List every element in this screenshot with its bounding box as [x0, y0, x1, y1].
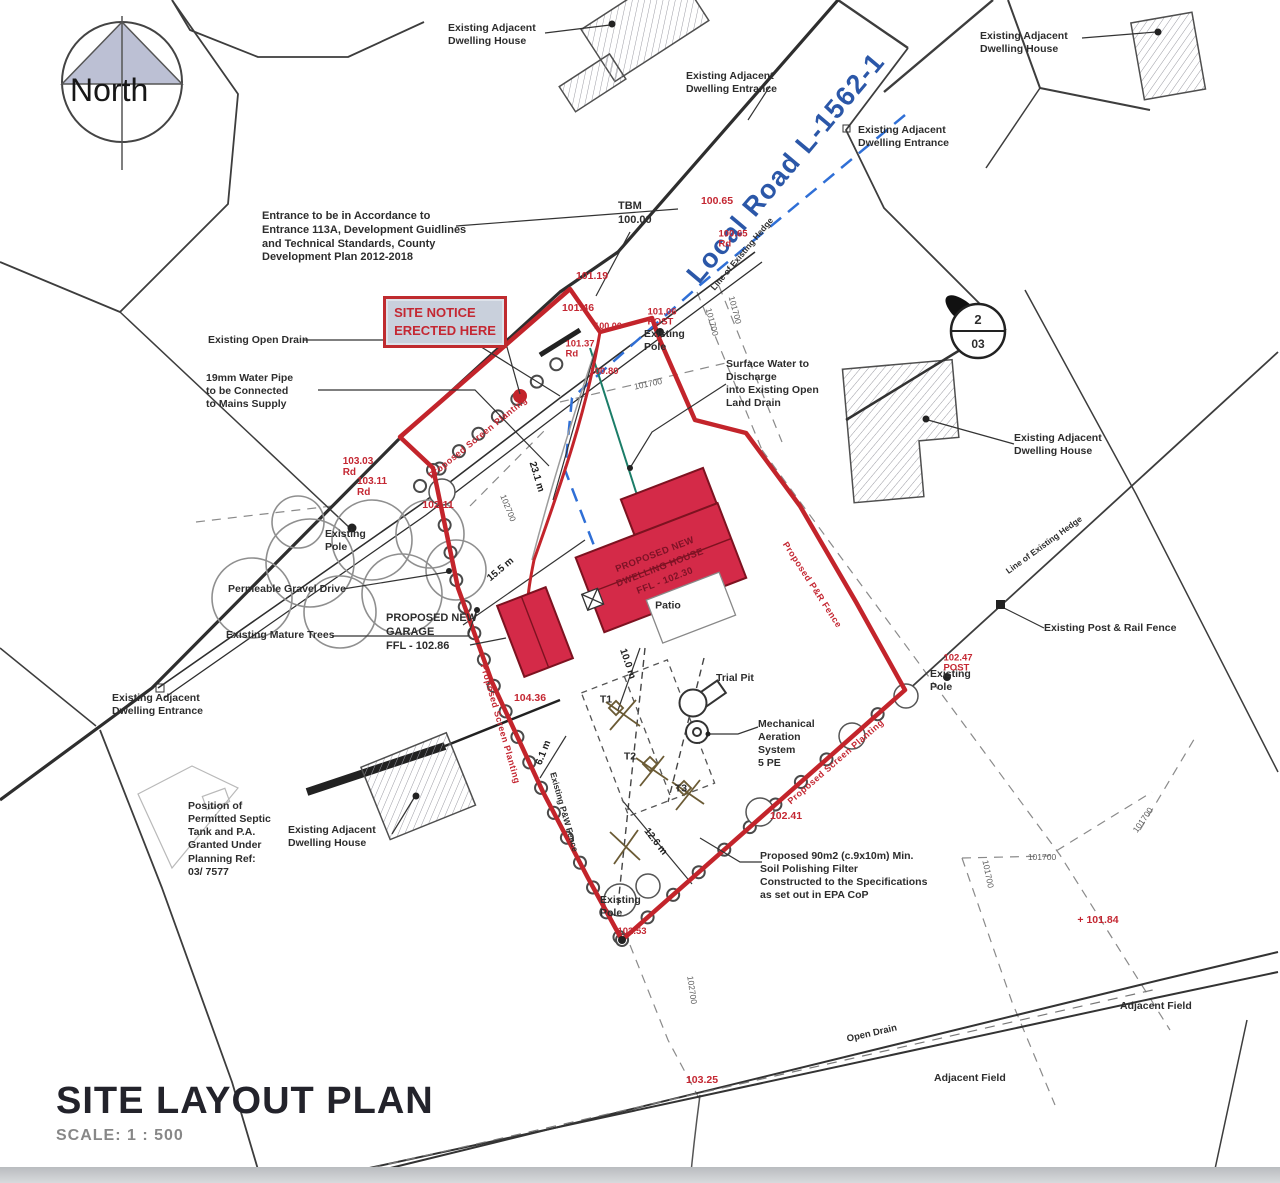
- site-plan-linework: [0, 0, 1280, 1183]
- scan-edge-strip: [0, 1167, 1280, 1183]
- bottom-drain: [300, 952, 1278, 1183]
- proposed-garage: [497, 587, 573, 677]
- existing-buildings: [361, 0, 1206, 840]
- septic-outline: [138, 766, 238, 868]
- section-marker-number: 2: [968, 312, 988, 327]
- leader-lines: [303, 25, 1156, 862]
- scale-label: SCALE: 1 : 500: [56, 1127, 434, 1145]
- site-notice-location-dot: [513, 389, 527, 403]
- screen-planting: [420, 352, 905, 940]
- existing-pole-left-symbol: [348, 524, 357, 533]
- north-label: North: [70, 72, 148, 109]
- section-marker-sheet: 03: [966, 337, 990, 351]
- aeration-system-symbol: [680, 690, 709, 744]
- site-notice-box: SITE NOTICE ERECTED HERE: [383, 296, 507, 348]
- road-lines: [0, 0, 838, 800]
- page-title: SITE LAYOUT PLAN: [56, 1080, 434, 1123]
- leader-dots: [156, 21, 1162, 945]
- internal-dashed: [618, 648, 704, 905]
- title-block: SITE LAYOUT PLAN SCALE: 1 : 500: [56, 1080, 434, 1145]
- site-layout-plan-sheet: North SITE NOTICE ERECTED HERE 2 03 Exis…: [0, 0, 1280, 1183]
